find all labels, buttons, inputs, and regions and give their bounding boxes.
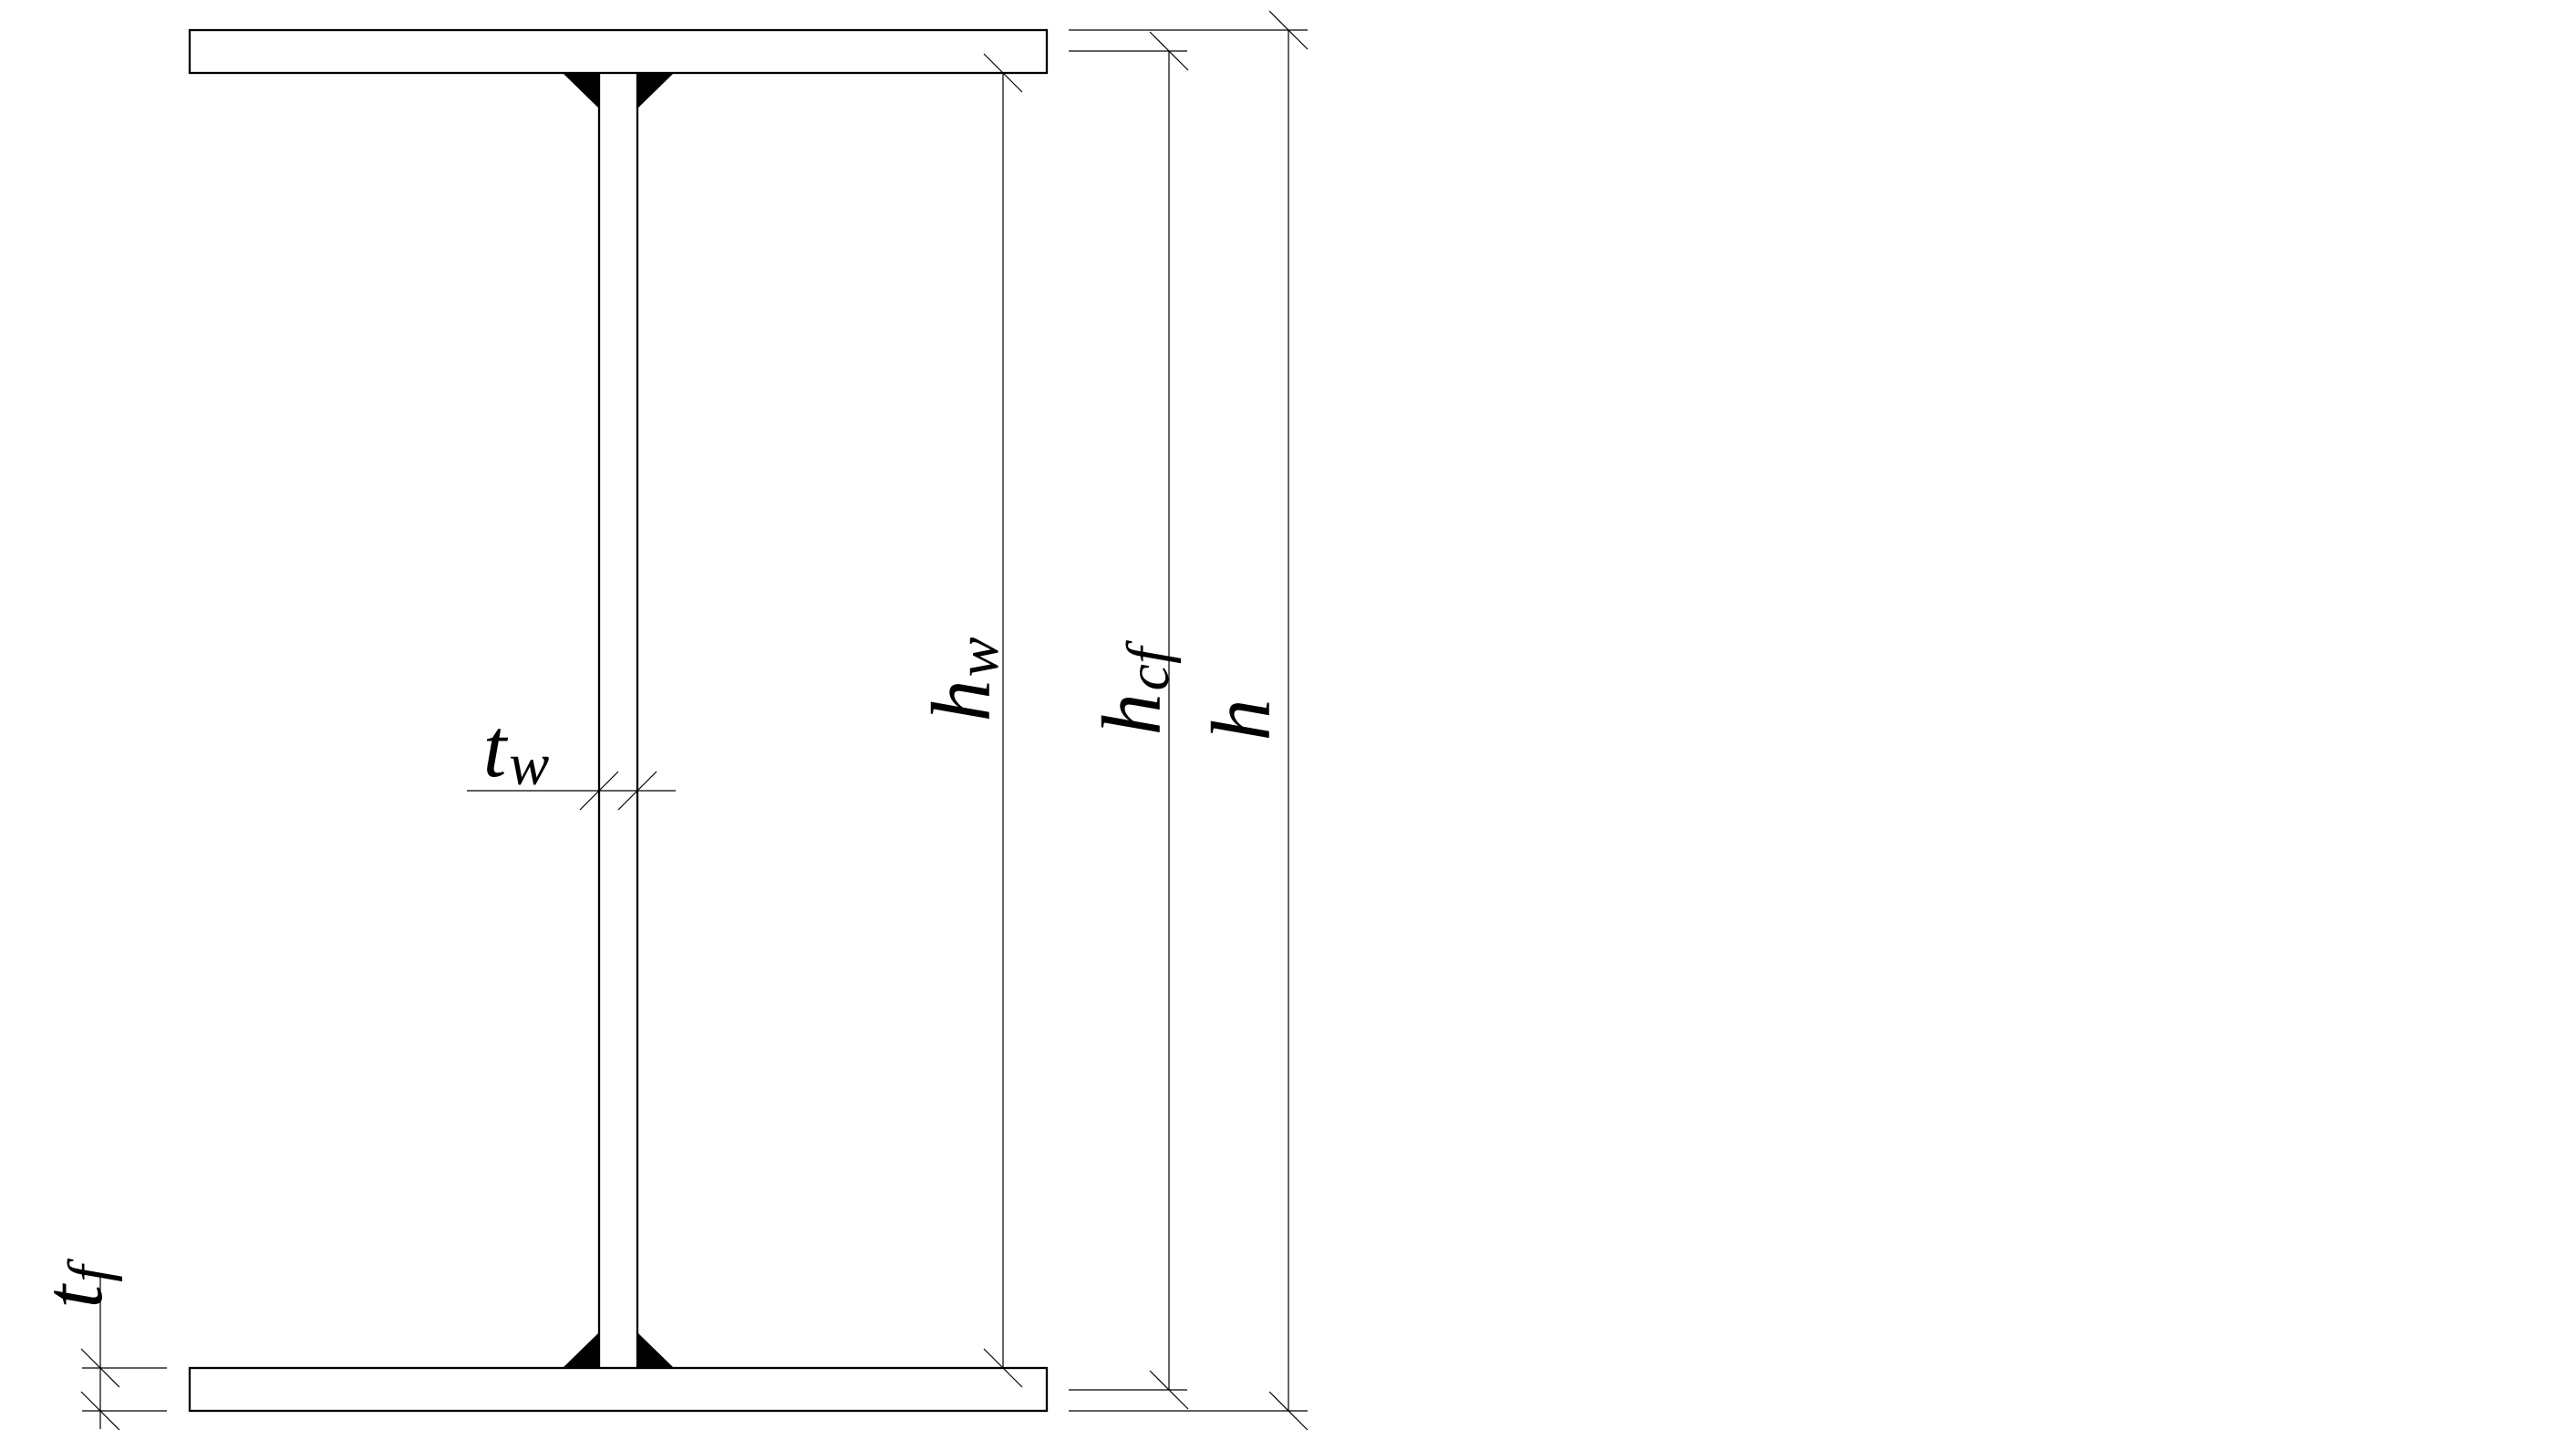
dim-label-main: t (26, 1285, 119, 1309)
dim-label-main: t (483, 701, 507, 794)
bottom-flange (190, 1368, 1047, 1411)
section-drawing-svg (0, 0, 2576, 1430)
weld-fillet-4 (637, 1332, 673, 1367)
dim-label-flange-centroid-distance: hcf (1090, 648, 1174, 736)
dim-label-main: h (1085, 693, 1178, 735)
drawing-canvas: tw hw hcf h tf (0, 0, 2576, 1430)
dim-label-flange-thickness: tf (31, 1266, 115, 1309)
weld-fillet-2 (637, 74, 673, 109)
dim-label-subscript: w (945, 637, 1011, 677)
dim-label-subscript: w (509, 731, 549, 798)
top-flange (190, 30, 1047, 73)
dim-label-subscript: cf (1115, 648, 1182, 691)
dim-label-main: h (1195, 699, 1288, 741)
weld-fillet-3 (564, 1332, 599, 1367)
dim-label-subscript: f (57, 1266, 123, 1282)
dim-label-web-thickness: tw (483, 706, 550, 790)
dim-label-main: h (915, 680, 1008, 722)
dim-label-web-height: hw (919, 637, 1003, 721)
weld-fillet-1 (564, 74, 599, 109)
dim-label-overall-depth: h (1199, 697, 1283, 741)
